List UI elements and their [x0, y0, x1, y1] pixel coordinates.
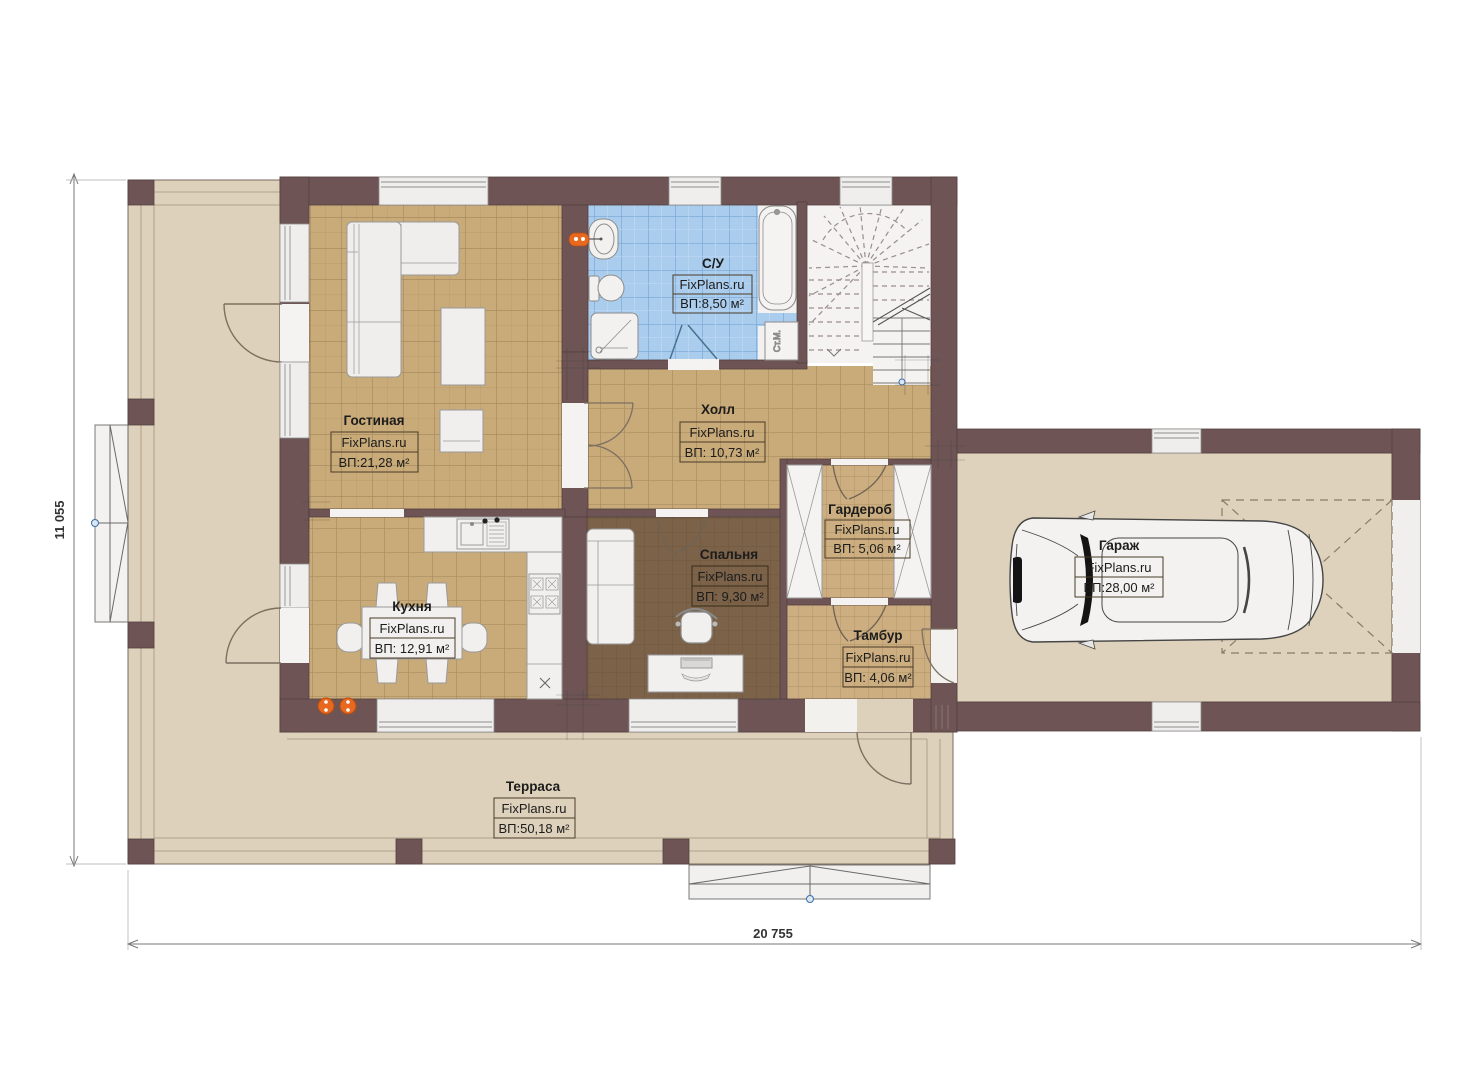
svg-text:ВП: 5,06 м²: ВП: 5,06 м²: [833, 541, 901, 556]
svg-text:ВП:28,00 м²: ВП:28,00 м²: [1083, 580, 1155, 595]
svg-text:ВП: 9,30 м²: ВП: 9,30 м²: [696, 589, 764, 604]
svg-text:ВП: 12,91 м²: ВП: 12,91 м²: [375, 641, 450, 656]
svg-text:Спальня: Спальня: [700, 547, 758, 562]
svg-text:FixPlans.ru: FixPlans.ru: [689, 425, 754, 440]
svg-text:ВП:8,50 м²: ВП:8,50 м²: [680, 296, 744, 311]
svg-text:Тамбур: Тамбур: [854, 628, 903, 643]
svg-text:FixPlans.ru: FixPlans.ru: [1086, 560, 1151, 575]
svg-text:С/У: С/У: [702, 256, 725, 271]
svg-text:11 055: 11 055: [52, 500, 67, 539]
svg-text:FixPlans.ru: FixPlans.ru: [679, 277, 744, 292]
svg-text:FixPlans.ru: FixPlans.ru: [379, 621, 444, 636]
svg-text:ВП:21,28 м²: ВП:21,28 м²: [338, 455, 410, 470]
svg-text:Гостиная: Гостиная: [343, 413, 404, 428]
svg-text:20 755: 20 755: [753, 926, 793, 941]
svg-text:Ст.М.: Ст.М.: [772, 330, 782, 352]
svg-text:ВП: 4,06 м²: ВП: 4,06 м²: [844, 670, 912, 685]
svg-text:FixPlans.ru: FixPlans.ru: [341, 435, 406, 450]
svg-text:Гараж: Гараж: [1099, 538, 1140, 553]
svg-text:FixPlans.ru: FixPlans.ru: [697, 569, 762, 584]
svg-text:FixPlans.ru: FixPlans.ru: [845, 650, 910, 665]
svg-text:FixPlans.ru: FixPlans.ru: [501, 801, 566, 816]
svg-text:Кухня: Кухня: [392, 599, 431, 614]
svg-text:Холл: Холл: [701, 402, 735, 417]
svg-text:ВП:50,18 м²: ВП:50,18 м²: [498, 821, 570, 836]
svg-text:ВП: 10,73 м²: ВП: 10,73 м²: [685, 445, 760, 460]
svg-text:Гардероб: Гардероб: [828, 502, 892, 517]
svg-text:Терраса: Терраса: [506, 779, 561, 794]
svg-text:FixPlans.ru: FixPlans.ru: [834, 522, 899, 537]
